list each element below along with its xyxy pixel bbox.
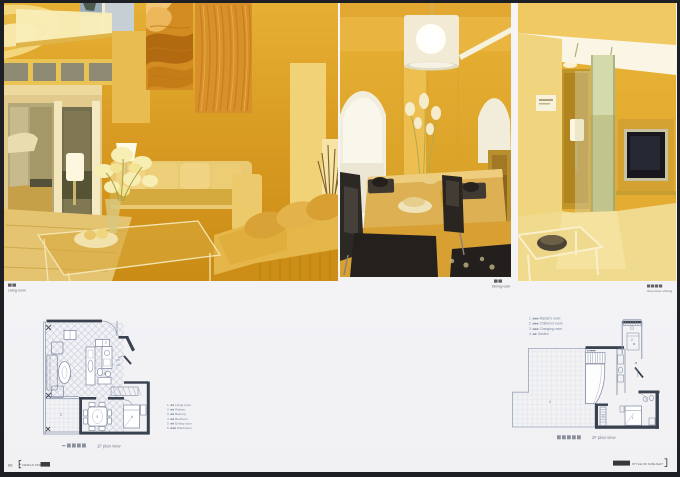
svg-text:5: 5	[97, 415, 99, 419]
svg-text:6: 6	[104, 372, 106, 376]
svg-text:2. ■■ Kitchen: 2. ■■ Kitchen	[167, 408, 186, 412]
svg-text:■ ■■■■: ■ ■■■■	[587, 350, 596, 353]
svg-text:4. ■■ Garden: 4. ■■ Garden	[529, 332, 549, 336]
svg-text:5. ■■ Dining room: 5. ■■ Dining room	[167, 421, 192, 425]
svg-text:3. ■■ Balcony: 3. ■■ Balcony	[167, 412, 187, 416]
svg-text:3: 3	[60, 413, 62, 417]
svg-text:1: 1	[632, 416, 634, 420]
svg-text:1: 1	[70, 374, 72, 378]
svg-text:One corner of living: One corner of living	[647, 289, 672, 293]
svg-text:2F plan view: 2F plan view	[592, 435, 616, 440]
svg-text:STYLE OF SUNLIGHT: STYLE OF SUNLIGHT	[632, 462, 663, 466]
svg-text:4: 4	[549, 400, 551, 404]
svg-text:2: 2	[105, 341, 107, 345]
svg-text:1F plan view: 1F plan view	[97, 443, 121, 448]
svg-text:4: 4	[131, 415, 133, 419]
svg-text:6. ■■■ Washroom: 6. ■■■ Washroom	[167, 426, 192, 430]
svg-text:1. ■■ Living room: 1. ■■ Living room	[167, 403, 191, 407]
svg-text:3: 3	[602, 415, 604, 419]
svg-text:2: 2	[631, 338, 633, 342]
svg-text:Living room: Living room	[8, 289, 26, 293]
svg-text:4. ■■ Bedroom: 4. ■■ Bedroom	[167, 417, 188, 421]
svg-text:2. ■■■ Children's room: 2. ■■■ Children's room	[529, 322, 563, 326]
svg-text:3. ■■■ Changing room: 3. ■■■ Changing room	[529, 327, 562, 331]
svg-text:88: 88	[8, 462, 13, 467]
svg-text:1. ■■■ Master's room: 1. ■■■ Master's room	[529, 317, 561, 321]
svg-text:Dining room: Dining room	[492, 285, 510, 289]
